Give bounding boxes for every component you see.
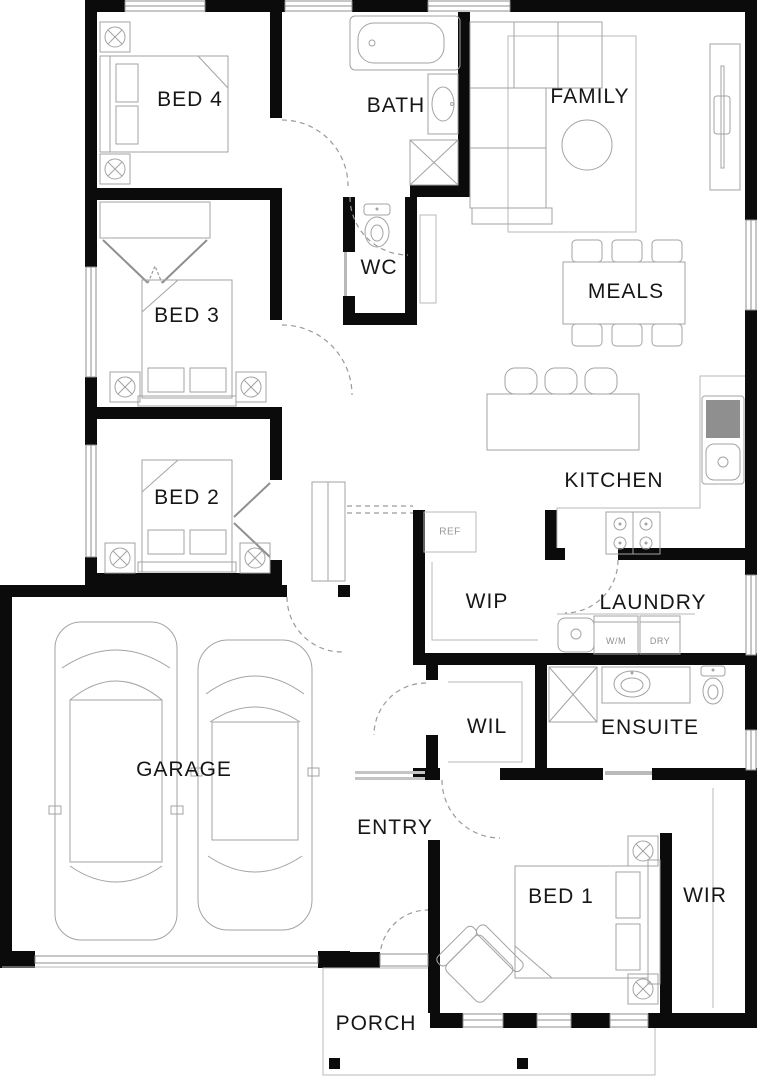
- bed-icon-bed3: [138, 280, 236, 406]
- car-icon-2: [191, 640, 319, 930]
- robe-door-bed3: [103, 240, 148, 283]
- washing-machine-label: W/M: [606, 636, 626, 646]
- shower-icon-bath: [410, 140, 458, 185]
- floor-plan-linework: [0, 0, 757, 1079]
- toilet-icon-ensuite: [701, 666, 725, 704]
- bed-icon-bed1: [515, 860, 660, 984]
- linen-shelf: [420, 215, 436, 303]
- room-label-bath: BATH: [367, 94, 425, 118]
- room-label-meals: MEALS: [588, 280, 664, 304]
- bed-icon-bed2: [138, 460, 236, 572]
- dryer-icon: [640, 616, 680, 654]
- rug: [508, 36, 636, 232]
- door-arc-bed1: [442, 780, 500, 838]
- room-label-porch: PORCH: [336, 1012, 417, 1036]
- door-arc-bed3: [282, 325, 352, 395]
- door-arc-garage: [287, 597, 342, 652]
- door-leaf-wc: [344, 252, 347, 296]
- armchair-icon: [435, 917, 526, 1008]
- room-label-laundry: LAUNDRY: [600, 591, 707, 615]
- coffee-table-icon: [562, 120, 612, 170]
- room-label-bed3: BED 3: [154, 304, 220, 328]
- room-label-bed4: BED 4: [157, 88, 223, 112]
- washing-machine-icon: [594, 616, 638, 654]
- room-label-wc: WC: [361, 256, 398, 280]
- robe-bed3: [100, 202, 210, 238]
- furniture: [2, 16, 745, 1075]
- shower-icon-ensuite: [549, 667, 597, 722]
- room-label-bed2: BED 2: [154, 486, 220, 510]
- porch-post: [517, 1058, 528, 1069]
- sliding-door-ensuite: [605, 771, 652, 775]
- ensuite-vanity-icon: [602, 667, 690, 703]
- linen-cupboard: [312, 482, 345, 581]
- fridge-label: REF: [439, 527, 461, 538]
- bath-vanity-icon: [428, 74, 458, 134]
- room-label-garage: GARAGE: [136, 758, 232, 782]
- sofa-icon: [470, 22, 602, 224]
- room-label-bed1: BED 1: [528, 885, 594, 909]
- robe-door-bed2: [234, 483, 270, 517]
- door-arc-entry: [380, 910, 428, 958]
- room-label-entry: ENTRY: [357, 816, 433, 840]
- room-label-kitchen: KITCHEN: [564, 469, 663, 493]
- door-arc-bed4: [282, 120, 348, 186]
- kitchen-sink-icon: [702, 396, 744, 484]
- garage-door-panel: [35, 956, 318, 963]
- bathtub-icon: [350, 16, 460, 70]
- room-label-family: FAMILY: [550, 85, 629, 109]
- cooktop-icon: [606, 512, 660, 554]
- island-bench-icon: [487, 368, 639, 450]
- room-label-wil: WIL: [467, 715, 507, 739]
- porch-post: [329, 1058, 340, 1069]
- toilet-icon-wc: [364, 204, 390, 247]
- room-label-wip: WIP: [466, 590, 509, 614]
- room-label-ensuite: ENSUITE: [601, 716, 699, 740]
- floor-plan: BED 4 BATH FAMILY WC MEALS BED 3 KITCHEN…: [0, 0, 757, 1079]
- room-label-wir: WIR: [683, 884, 727, 908]
- robe-door-bed2: [234, 523, 270, 557]
- door-arc-wil: [374, 683, 426, 735]
- robe-door-bed3: [162, 240, 207, 283]
- laundry-tub-icon: [558, 618, 594, 652]
- dryer-label: DRY: [650, 636, 670, 646]
- tv-unit-icon: [710, 44, 740, 190]
